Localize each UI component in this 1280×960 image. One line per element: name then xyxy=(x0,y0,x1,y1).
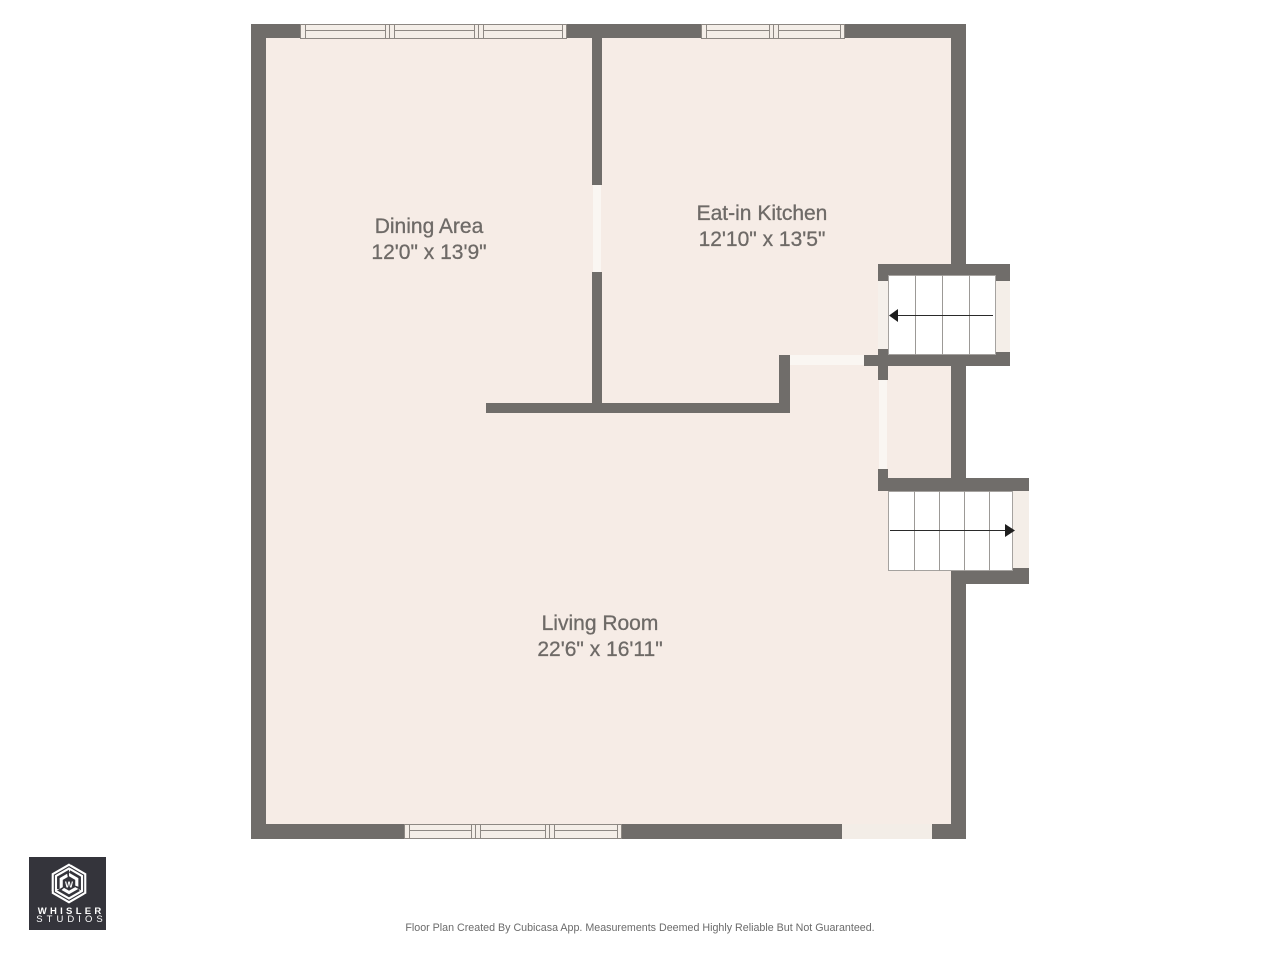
svg-text:W: W xyxy=(65,879,74,889)
